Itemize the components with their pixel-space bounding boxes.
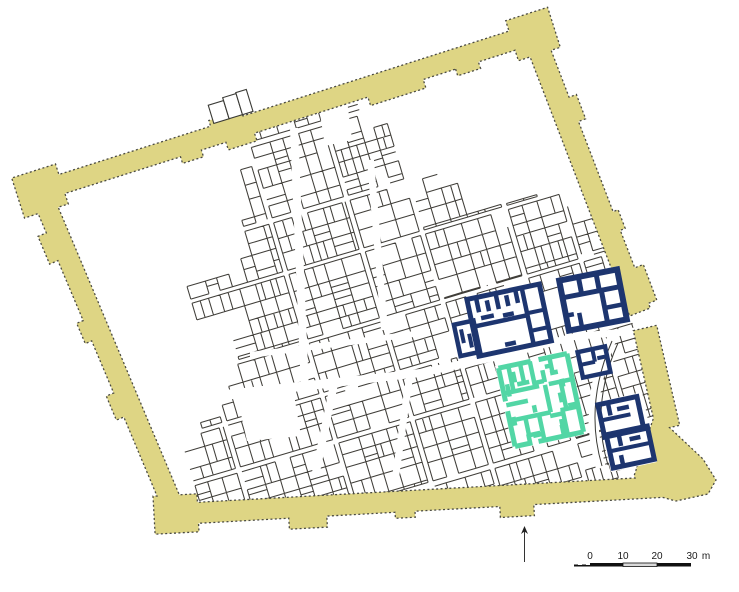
svg-text:30: 30: [686, 551, 698, 562]
svg-text:0: 0: [587, 551, 593, 562]
svg-text:10: 10: [617, 551, 629, 562]
svg-text:m: m: [702, 551, 710, 562]
svg-text:20: 20: [651, 551, 663, 562]
